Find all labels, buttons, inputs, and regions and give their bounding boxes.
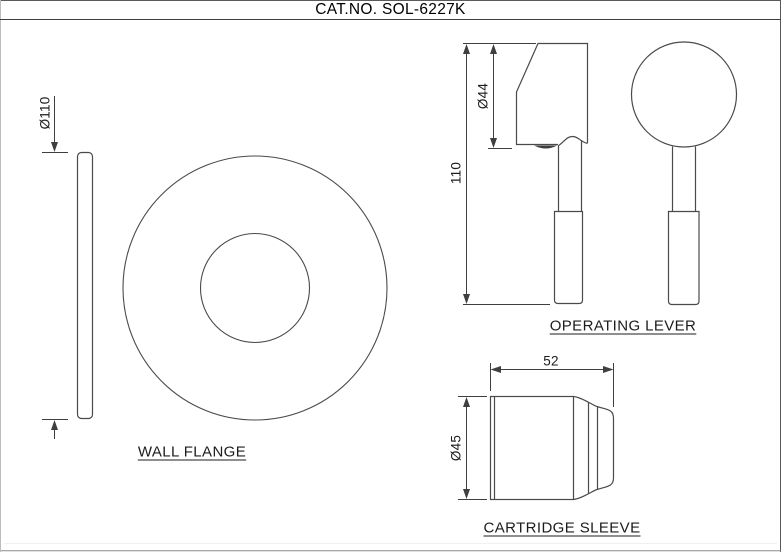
view-label-cartridge-sleeve: CARTRIDGE SLEEVE [483,520,640,537]
view-label-operating-lever: OPERATING LEVER [550,318,697,335]
view-label-wall-flange: WALL FLANGE [138,444,246,461]
drawing-canvas [0,0,781,552]
technical-drawing-page: { "title": "CAT.NO. SOL-6227K", "views":… [0,0,781,552]
lever-side-view [517,44,588,304]
dim-label-sleeve-length: 52 [543,354,558,369]
wall-flange-front-view [123,156,387,420]
dim-label-flange-diameter: Ø110 [38,97,53,130]
dim-label-lever-head-diameter: Ø44 [476,83,491,109]
page-border [0,0,781,552]
lever-front-view [632,42,737,305]
cartridge-sleeve-view [491,397,614,500]
wall-flange-side-view [78,153,93,419]
drawing-title: CAT.NO. SOL-6227K [0,1,781,18]
dimension-sleeve-length [491,363,614,407]
dimension-flange-diameter [42,96,68,439]
dim-label-sleeve-diameter: Ø45 [449,435,464,461]
dim-label-lever-length: 110 [449,162,464,184]
dimension-lever-head-diameter [488,44,512,149]
